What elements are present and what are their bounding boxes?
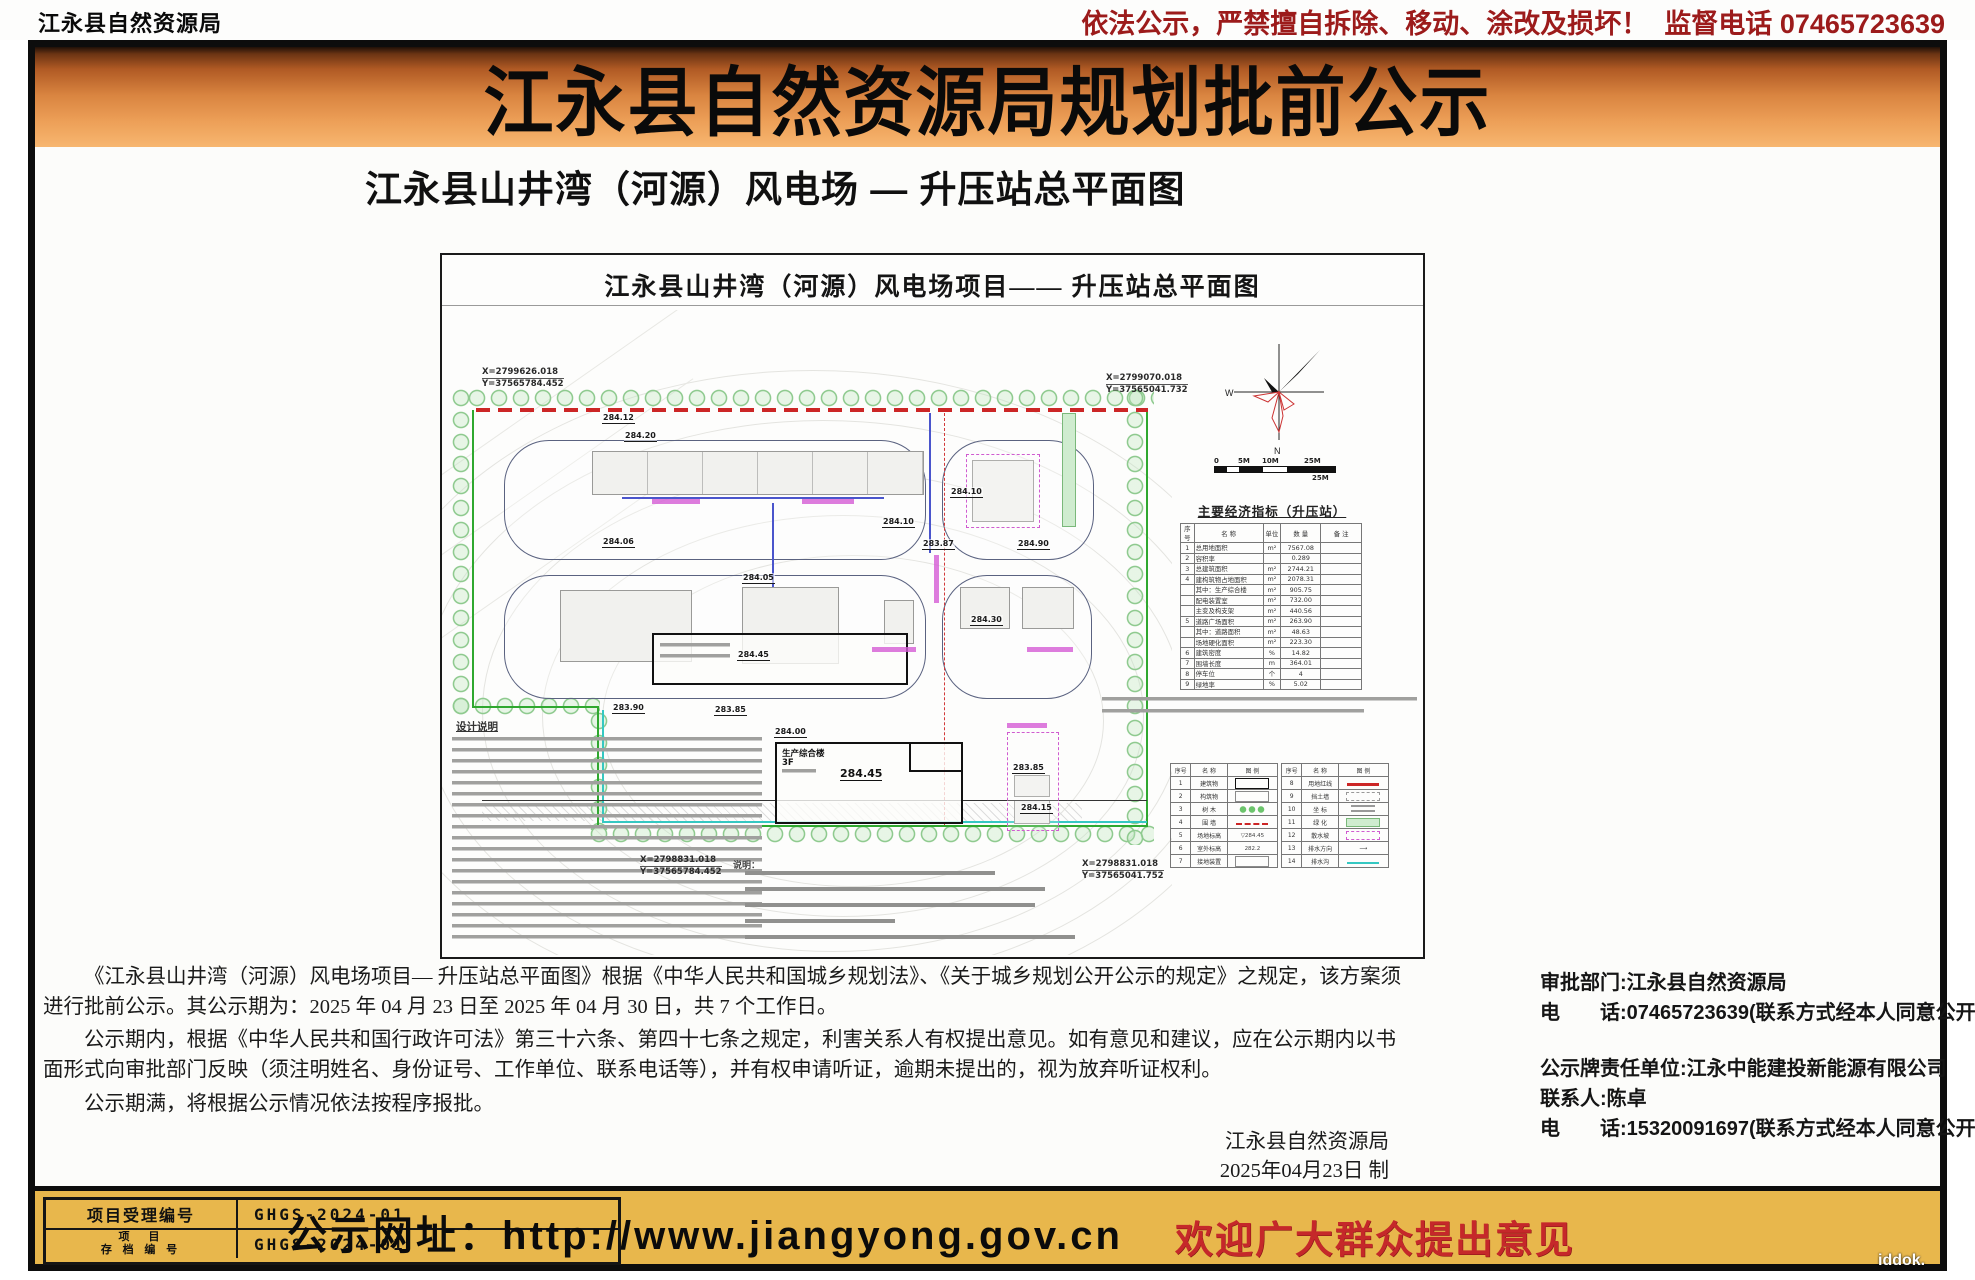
legend-row: 1 建筑物 bbox=[1171, 777, 1278, 790]
legend-symbol bbox=[1351, 805, 1375, 813]
coord-x: X=2799070.018 bbox=[1106, 373, 1188, 385]
coord-x: X=2798831.018 bbox=[1082, 859, 1164, 871]
econ-row: 场地硬化面积 m² 223.30 bbox=[1181, 637, 1362, 648]
scale-tick: 5M bbox=[1238, 457, 1250, 465]
coord-y: Y=37565041.752 bbox=[1082, 871, 1164, 882]
agency-name: 江永县自然资源局 bbox=[38, 6, 222, 38]
top-strip: 江永县自然资源局 依法公示，严禁擅自拆除、移动、涂改及损坏！监督电话 07465… bbox=[0, 0, 1975, 40]
econ-table: 序号 名 称 单位 数 量 备 注 1 总用地面积 m² 756 bbox=[1180, 523, 1362, 690]
road-label-bar bbox=[802, 499, 854, 504]
scale-tick: 0 bbox=[1214, 457, 1219, 465]
econ-row: 7 围墙长度 m 364.01 bbox=[1181, 658, 1362, 669]
coord-bottom-left: X=2798831.018 Y=37565784.452 bbox=[640, 855, 722, 878]
legend-symbol bbox=[1346, 818, 1380, 827]
subtitle: 江永县山井湾（河源）风电场 — 升压站总平面图 bbox=[365, 159, 1186, 213]
red-boundary-line bbox=[476, 408, 1148, 412]
elevation-label: 284.45 bbox=[737, 650, 770, 661]
road-label-bar bbox=[1027, 647, 1073, 652]
elevation-label: 284.15 bbox=[1020, 803, 1053, 814]
econ-row: 5 道路广场面积 m² 263.90 bbox=[1181, 616, 1362, 627]
plan-notes-label: 说明： bbox=[733, 858, 760, 871]
public-notice-poster: 江永县自然资源局 依法公示，严禁擅自拆除、移动、涂改及损坏！监督电话 07465… bbox=[0, 0, 1975, 1280]
design-notes-bars bbox=[452, 737, 762, 942]
contact-phone: 电 话:15320091697(联系方式经本人同意公开) bbox=[1540, 1114, 1940, 1144]
econ-table-title: 主要经济指标（升压站） bbox=[1177, 501, 1367, 520]
scale-tick: 25M bbox=[1304, 457, 1321, 465]
legend-right: 序号 名 称 图 例 8 用地红线 bbox=[1281, 763, 1389, 868]
site-plan-drawing: 江永县山井湾（河源）风电场项目—— 升压站总平面图 bbox=[440, 253, 1425, 959]
pink-dashed-enclosure bbox=[1007, 732, 1059, 831]
scale-end-label: 25M bbox=[1312, 474, 1329, 482]
legend-row: 8 用地红线 bbox=[1282, 777, 1389, 790]
elevation-label: 283.90 bbox=[612, 703, 645, 714]
econ-row: 其中：道路面积 m² 48.63 bbox=[1181, 627, 1362, 638]
legend-row: 13 排水方向 ⟶ bbox=[1282, 842, 1389, 855]
tree-col-right bbox=[1124, 387, 1146, 845]
compass-west-label: W bbox=[1225, 388, 1234, 398]
econ-row: 6 建筑密度 % 14.82 bbox=[1181, 648, 1362, 659]
road-label-bar bbox=[872, 647, 916, 652]
plan-note-bar bbox=[745, 903, 1035, 907]
acceptance-number-label: 项目受理编号 bbox=[46, 1200, 238, 1228]
contact-person: 联系人:陈卓 bbox=[1540, 1084, 1940, 1114]
compass-north-label: N bbox=[1274, 446, 1281, 456]
legend-symbol bbox=[1347, 862, 1379, 864]
green-boundary-left bbox=[472, 410, 474, 708]
plan-note-bar bbox=[745, 871, 995, 875]
poster-frame: 江永县自然资源局规划批前公示 江永县山井湾（河源）风电场 — 升压站总平面图 江… bbox=[28, 40, 1947, 1271]
legend-symbol bbox=[1236, 805, 1268, 814]
legend-row: 11 绿 化 bbox=[1282, 816, 1389, 829]
legend-row: 9 挡土墙 bbox=[1282, 790, 1389, 803]
legend-row: 12 散水坡 bbox=[1282, 829, 1389, 842]
main-building-label-bar bbox=[782, 769, 816, 775]
legend-row: 14 排水沟 bbox=[1282, 855, 1389, 868]
legend-table: 序号 名 称 图 例 1 建筑物 bbox=[1170, 763, 1390, 868]
cable-trench-line-v1 bbox=[929, 413, 931, 553]
tree-col-left bbox=[450, 387, 472, 717]
paragraph-2: 公示期内，根据《中华人民共和国行政许可法》第三十六条、第四十七条之规定，利害关系… bbox=[43, 1026, 1403, 1085]
elevation-label: 284.12 bbox=[602, 413, 635, 424]
elevation-label: 283.87 bbox=[922, 539, 955, 550]
road-label-bar bbox=[1007, 723, 1047, 728]
econ-header-row: 序号 名 称 单位 数 量 备 注 bbox=[1181, 524, 1362, 543]
econ-row: 9 绿地率 % 5.02 bbox=[1181, 679, 1362, 690]
green-strip bbox=[1062, 413, 1076, 527]
legend-symbol bbox=[1346, 831, 1380, 840]
legend-row: 2 构筑物 bbox=[1171, 790, 1278, 803]
legend-symbol bbox=[1347, 783, 1379, 786]
plan-note-bar bbox=[745, 919, 895, 923]
elevation-label: 284.05 bbox=[742, 573, 775, 584]
coord-bottom-right: X=2798831.018 Y=37565041.752 bbox=[1082, 859, 1164, 882]
econ-row: 8 停车位 个 4 bbox=[1181, 669, 1362, 680]
main-building-floors: 3F bbox=[782, 758, 794, 768]
green-boundary-step bbox=[472, 706, 599, 708]
publicity-url: 公示网址：http://www.jiangyong.gov.cn bbox=[245, 1203, 1165, 1261]
road-label-bar bbox=[934, 555, 939, 603]
contact-info: 审批部门:江永县自然资源局 电 话:07465723639(联系方式经本人同意公… bbox=[1540, 968, 1940, 1144]
main-building-notch bbox=[909, 744, 961, 772]
econ-row: 4 建构筑物占地面积 m² 2078.31 bbox=[1181, 574, 1362, 585]
elevation-label: 283.85 bbox=[714, 705, 747, 716]
drawing-title-rule bbox=[442, 305, 1423, 306]
elevation-label: 284.20 bbox=[624, 431, 657, 442]
notice-body: 《江永县山井湾（河源）风电场项目— 升压站总平面图》根据《中华人民共和国城乡规划… bbox=[43, 963, 1403, 1187]
elevation-label: 284.90 bbox=[1017, 539, 1050, 550]
legend-symbol bbox=[1235, 856, 1269, 867]
coord-y: Y=37565041.732 bbox=[1106, 385, 1188, 396]
legend-symbol bbox=[1235, 791, 1269, 802]
plan-note-bar bbox=[745, 887, 1045, 891]
econ-note-bar bbox=[1102, 697, 1417, 703]
tree-row-top bbox=[466, 387, 1154, 409]
coord-y: Y=37565784.452 bbox=[640, 867, 722, 878]
long-structure-label-bar bbox=[660, 643, 730, 661]
coord-x: X=2799626.018 bbox=[482, 367, 564, 379]
paragraph-3: 公示期满，将根据公示情况依法按程序报批。 bbox=[43, 1090, 1403, 1120]
equipment-row-building bbox=[592, 451, 924, 495]
warning-text: 依法公示，严禁擅自拆除、移动、涂改及损坏！ bbox=[1081, 9, 1648, 39]
plan-note-bar bbox=[745, 935, 1075, 939]
econ-row: 2 容积率 0.289 bbox=[1181, 553, 1362, 564]
econ-note-bar bbox=[1102, 709, 1364, 715]
elevation-label: 284.00 bbox=[774, 727, 807, 738]
legend-left: 序号 名 称 图 例 1 建筑物 bbox=[1170, 763, 1278, 868]
econ-row: 配电装置室 m² 732.00 bbox=[1181, 595, 1362, 606]
signature-date: 2025年04月23日 制 bbox=[43, 1157, 1403, 1187]
legend-row: 10 坐 标 bbox=[1282, 803, 1389, 816]
compass-rose-icon: W N bbox=[1224, 340, 1334, 458]
legend-row: 6 室外标高 282.2 bbox=[1171, 842, 1278, 855]
signature: 江永县自然资源局 bbox=[43, 1128, 1403, 1158]
coord-top-left: X=2799626.018 Y=37565784.452 bbox=[482, 367, 564, 390]
approval-phone: 电 话:07465723639(联系方式经本人同意公开) bbox=[1540, 998, 1940, 1028]
legend-symbol bbox=[1346, 792, 1380, 801]
legend-row: 4 围 墙 bbox=[1171, 816, 1278, 829]
road-label-bar bbox=[652, 499, 700, 504]
responsible-unit: 公示牌责任单位:江永中能建投新能源有限公司 bbox=[1540, 1054, 1940, 1084]
drawing-title: 江永县山井湾（河源）风电场项目—— 升压站总平面图 bbox=[442, 267, 1423, 303]
elevation-label: 284.30 bbox=[970, 615, 1003, 626]
elevation-label: 283.85 bbox=[1012, 763, 1045, 774]
econ-row: 主变及构支架 m² 440.56 bbox=[1181, 606, 1362, 617]
legend-row: 7 接地装置 bbox=[1171, 855, 1278, 868]
elevation-label: 284.10 bbox=[950, 487, 983, 498]
scale-tick: 10M bbox=[1262, 457, 1279, 465]
legend-header-row: 序号 名 称 图 例 bbox=[1171, 764, 1278, 777]
econ-row: 1 总用地面积 m² 7567.08 bbox=[1181, 543, 1362, 554]
coord-x: X=2798831.018 bbox=[640, 855, 722, 867]
approval-dept: 审批部门:江永县自然资源局 bbox=[1540, 968, 1940, 998]
paragraph-1: 《江永县山井湾（河源）风电场项目— 升压站总平面图》根据《中华人民共和国城乡规划… bbox=[43, 963, 1403, 1022]
footer-bar: 项目受理编号 GHGS-2024-01 项 目 存 档 编 号 GHGS-202… bbox=[35, 1186, 1940, 1264]
scale-bar: 0 5M 10M 25M 25M bbox=[1214, 457, 1346, 485]
econ-row: 3 总建筑面积 m² 2744.21 bbox=[1181, 564, 1362, 575]
econ-row: 其中：生产综合楼 m² 905.75 bbox=[1181, 585, 1362, 596]
legend-row: 5 场地标高 ▽284.45 bbox=[1171, 829, 1278, 842]
legend-symbol bbox=[1235, 778, 1269, 789]
supervision-hotline: 监督电话 07465723639 bbox=[1664, 9, 1945, 39]
legend-symbol bbox=[1236, 823, 1268, 825]
elevation-label: 284.10 bbox=[882, 517, 915, 528]
contacts-spacer bbox=[1540, 1028, 1940, 1054]
coord-top-right: X=2799070.018 Y=37565041.732 bbox=[1106, 373, 1188, 396]
legend-row: 3 树 木 bbox=[1171, 803, 1278, 816]
elevation-label: 284.06 bbox=[602, 537, 635, 548]
welcome-slogan: 欢迎广大群众提出意见 bbox=[1175, 1209, 1575, 1264]
title-banner: 江永县自然资源局规划批前公示 bbox=[35, 47, 1940, 147]
photo-watermark: iddok. bbox=[1878, 1252, 1925, 1270]
main-title: 江永县自然资源局规划批前公示 bbox=[35, 47, 1940, 155]
legend-header-row: 序号 名 称 图 例 bbox=[1282, 764, 1389, 777]
building-right-2 bbox=[1022, 587, 1074, 629]
coord-y: Y=37565784.452 bbox=[482, 379, 564, 390]
green-boundary-right bbox=[1146, 410, 1148, 827]
archive-number-label: 项 目 存 档 编 号 bbox=[46, 1230, 238, 1258]
scale-bar-segments bbox=[1214, 466, 1336, 473]
design-notes-title: 设计说明 bbox=[456, 719, 498, 734]
main-building-elevation: 284.45 bbox=[840, 767, 882, 781]
warning-banner: 依法公示，严禁擅自拆除、移动、涂改及损坏！监督电话 07465723639 bbox=[1081, 2, 1945, 41]
